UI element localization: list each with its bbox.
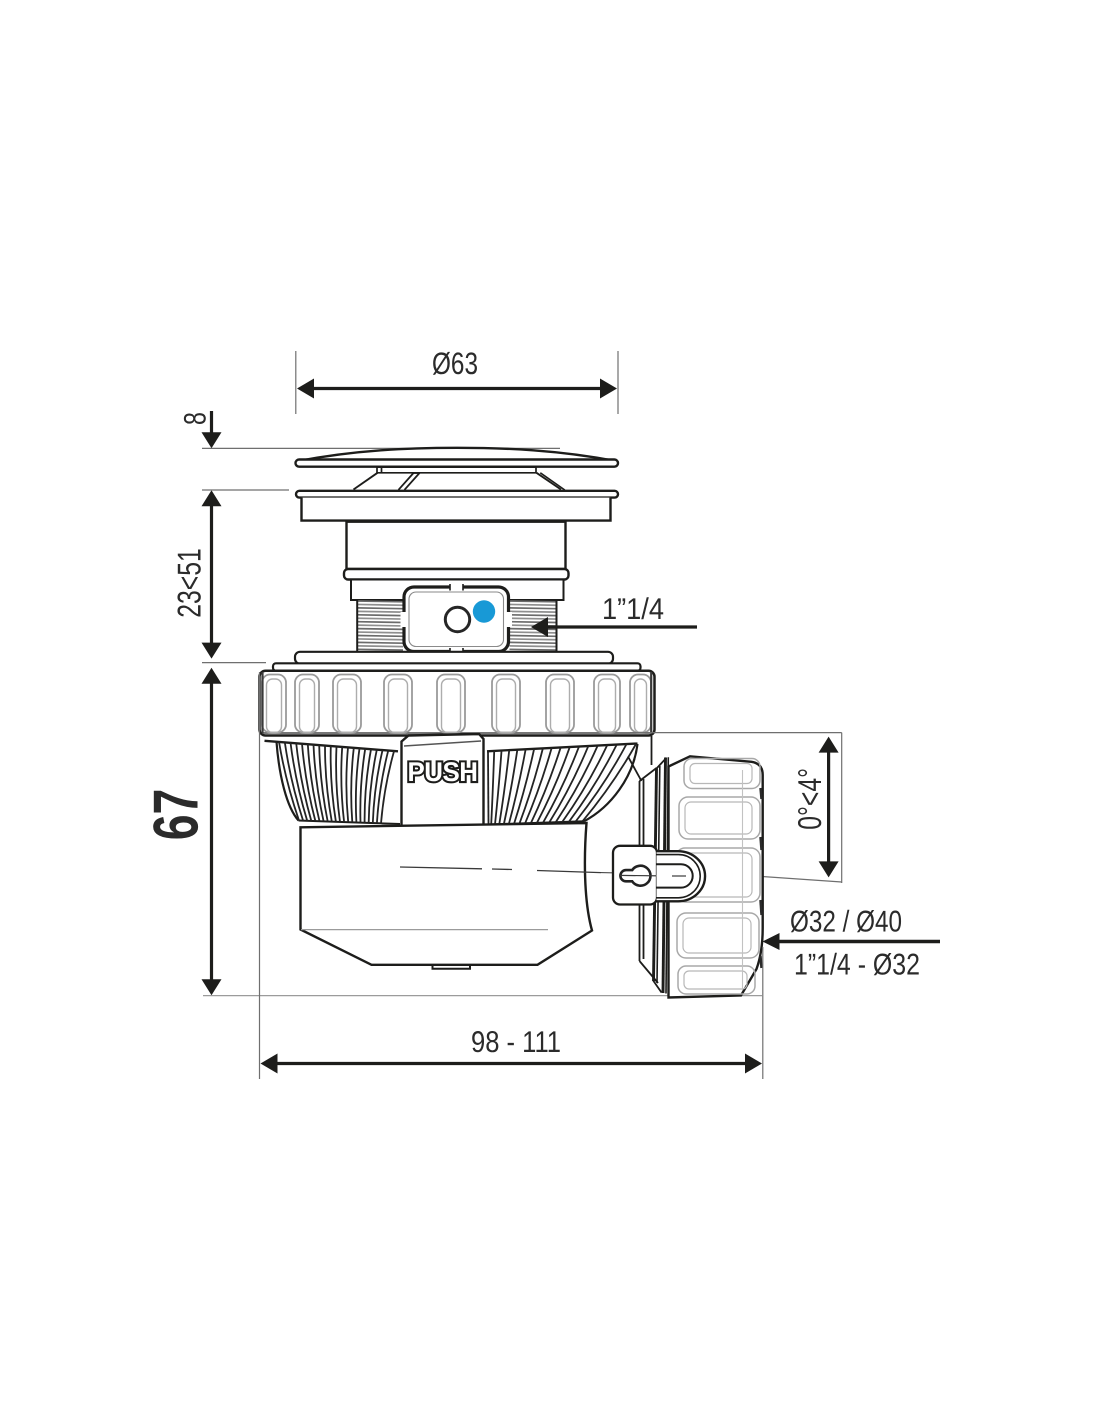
svg-text:67: 67 [142, 789, 212, 841]
svg-text:Ø32 / Ø40: Ø32 / Ø40 [790, 906, 902, 939]
svg-text:1”1/4: 1”1/4 [602, 593, 664, 626]
svg-text:0°<4°: 0°<4° [791, 768, 828, 830]
svg-text:1”1/4 - Ø32: 1”1/4 - Ø32 [794, 949, 920, 982]
svg-text:8: 8 [178, 412, 213, 425]
svg-text:98 - 111: 98 - 111 [471, 1026, 561, 1059]
svg-text:23<51: 23<51 [171, 548, 208, 618]
svg-text:Ø63: Ø63 [432, 346, 478, 381]
svg-text:PUSH: PUSH [408, 757, 478, 787]
